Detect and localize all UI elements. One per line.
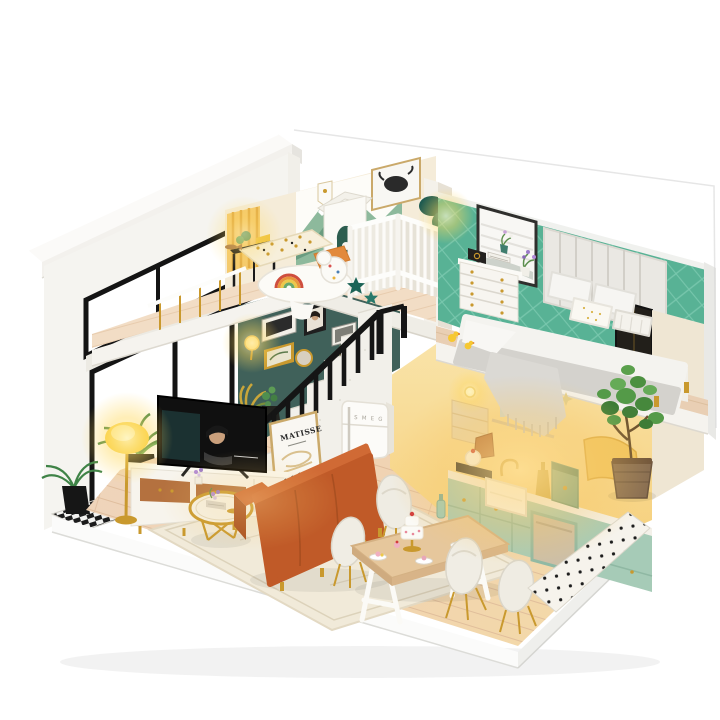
- dollhouse-photo: S M E G MATISSE: [0, 0, 720, 720]
- bed-foot: [684, 382, 689, 393]
- bed-foot: [654, 396, 659, 407]
- ground-shadow: [60, 646, 660, 678]
- gallery-round-mirror: [296, 350, 312, 366]
